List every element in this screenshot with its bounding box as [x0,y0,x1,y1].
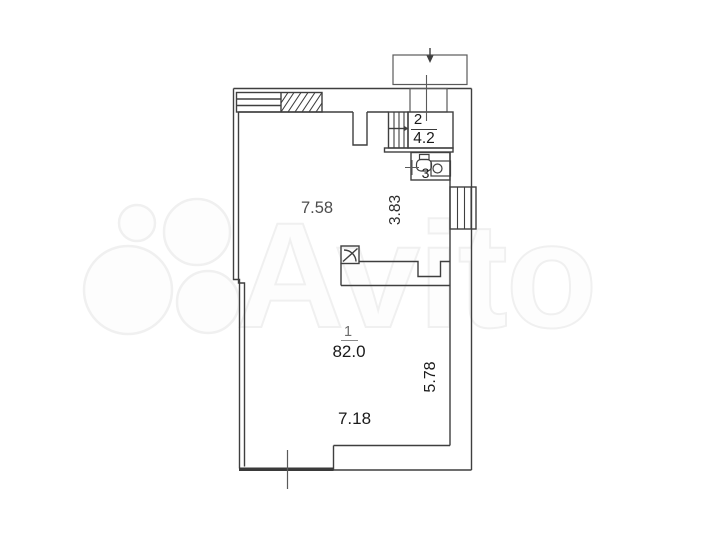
mid-wall [341,262,450,286]
floorplan-screenshot: Avito [0,0,720,540]
wall-duct-notch [353,112,367,145]
vent-duct-icon [341,246,359,264]
dim-right-height: 5.78 [422,350,442,404]
dim-bottom-width: 7.18 [327,409,382,429]
room-2-area: 4.2 [409,130,439,148]
wall-hatch-block [237,93,323,113]
floorplan-drawing [0,0,720,540]
room-1-area: 82.0 [329,342,369,362]
entrance-arrow-icon [427,48,434,63]
dim-upper-width: 7.58 [292,199,342,218]
dim-upper-right-width: 3.83 [387,185,407,235]
window-wall-thick [239,468,334,472]
entry-landing [410,89,447,113]
room-2-number: 2 [403,111,433,128]
washbasin-icon [431,161,451,176]
room-1-number: 1 [338,324,358,340]
room-3-number: 3 [418,165,433,181]
